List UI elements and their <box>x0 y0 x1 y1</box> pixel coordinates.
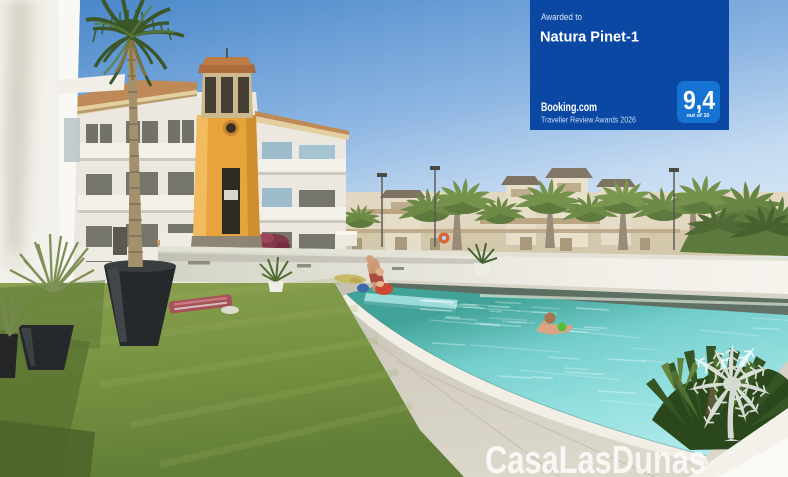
svg-text:Awarded to: Awarded to <box>541 12 582 22</box>
svg-text:Natura Pinet-1: Natura Pinet-1 <box>540 29 639 46</box>
svg-text:9,4: 9,4 <box>683 85 715 115</box>
svg-text:Booking.com: Booking.com <box>541 100 597 114</box>
svg-text:out of 10: out of 10 <box>687 113 710 119</box>
svg-text:Traveller Review Awards 2026: Traveller Review Awards 2026 <box>541 115 636 125</box>
svg-text:CasaLasDunas: CasaLasDunas <box>485 439 706 477</box>
